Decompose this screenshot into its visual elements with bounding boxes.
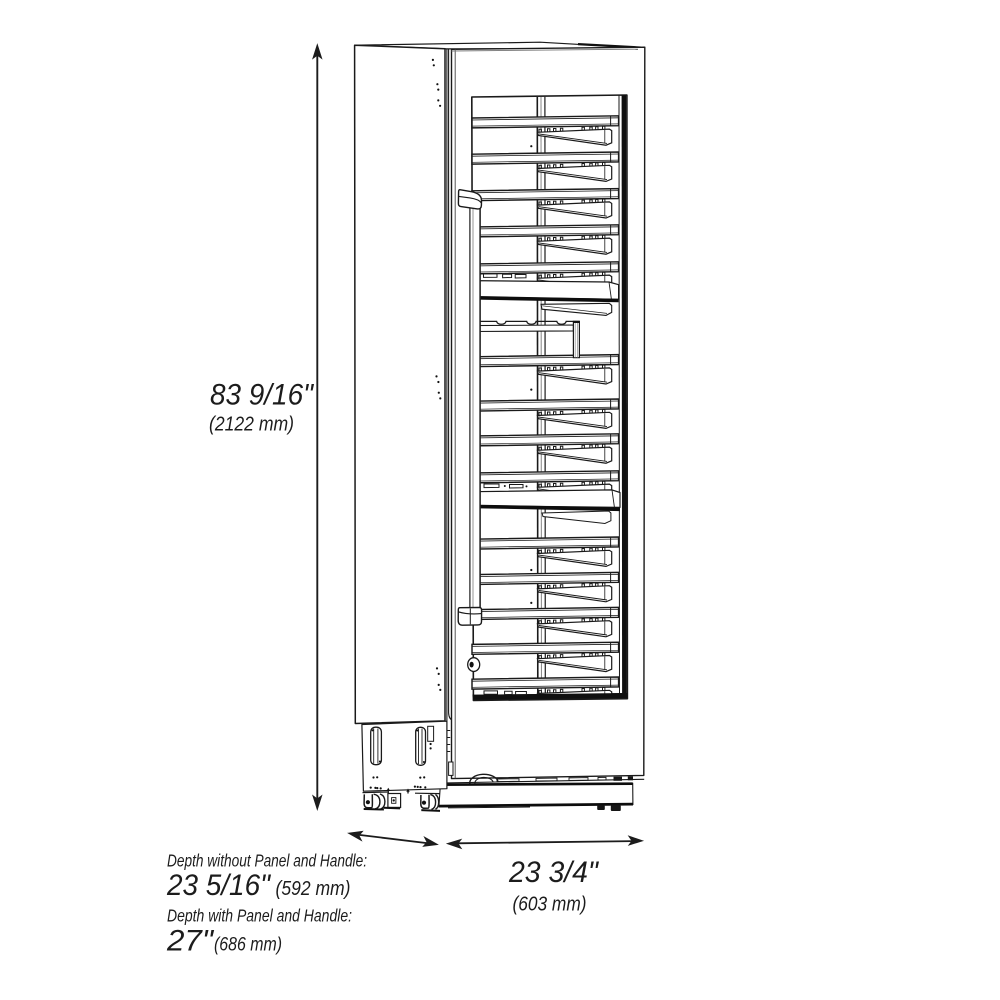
svg-text:(603 mm): (603 mm) — [513, 894, 587, 916]
svg-text:(592 mm): (592 mm) — [276, 878, 351, 900]
svg-text:Depth without Panel and Handle: Depth without Panel and Handle: — [167, 851, 367, 871]
svg-text:Depth with Panel and Handle:: Depth with Panel and Handle: — [167, 906, 352, 926]
svg-text:27": 27" — [166, 925, 214, 958]
svg-text:23 3/4": 23 3/4" — [508, 856, 599, 889]
svg-text:23 5/16": 23 5/16" — [166, 869, 271, 902]
svg-text:(686 mm): (686 mm) — [214, 934, 282, 956]
svg-text:(2122 mm): (2122 mm) — [209, 414, 294, 436]
svg-text:83 9/16": 83 9/16" — [210, 379, 314, 412]
